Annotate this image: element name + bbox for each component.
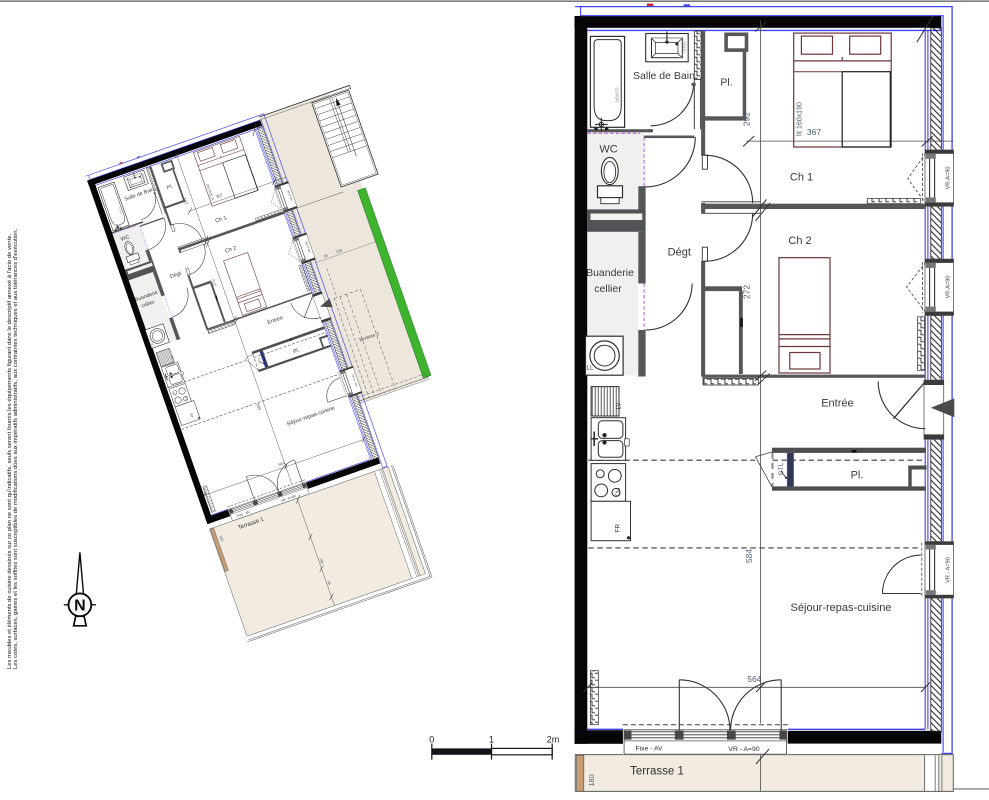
svg-text:1: 1 (489, 735, 494, 745)
svg-text:Les meubles et éléments de cui: Les meubles et éléments de cuisine dessi… (7, 234, 13, 669)
svg-text:2m: 2m (547, 735, 560, 745)
svg-text:0: 0 (429, 735, 434, 745)
svg-text:N: N (74, 598, 86, 615)
svg-text:Les cotes, surfaces, gaines et: Les cotes, surfaces, gaines et les soffi… (13, 229, 19, 669)
